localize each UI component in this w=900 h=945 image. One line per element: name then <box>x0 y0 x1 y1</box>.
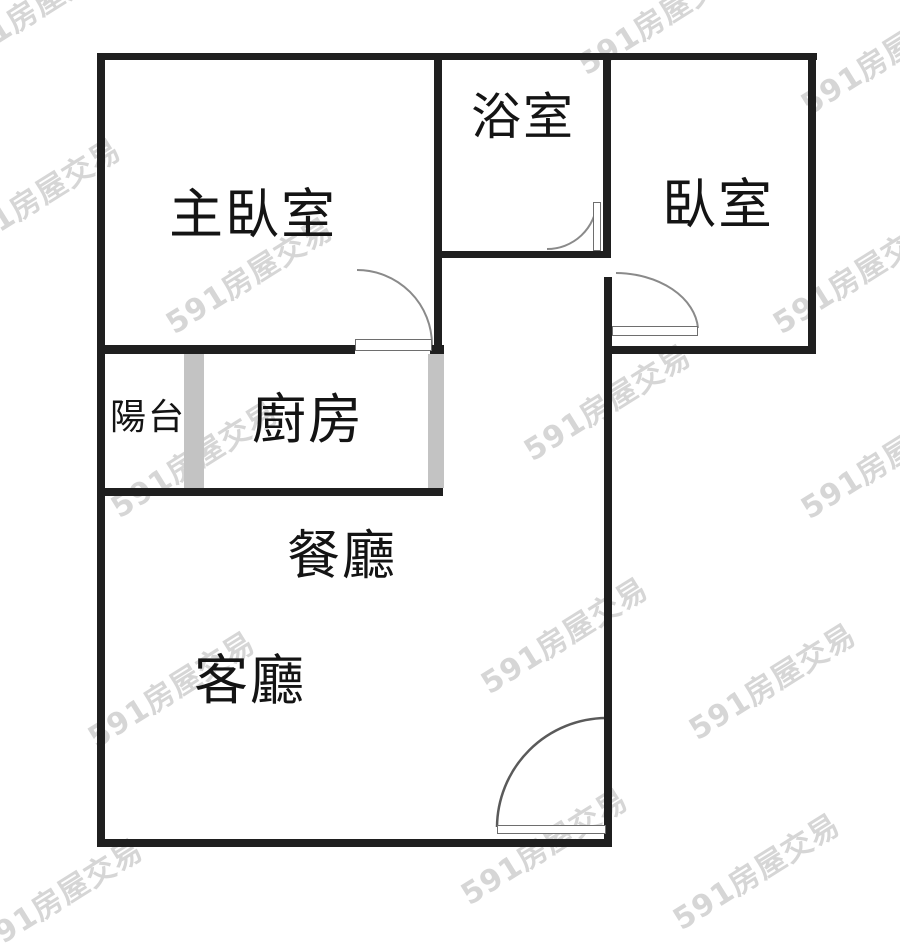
wall-bathroom-bottom <box>434 251 611 258</box>
room-label-living-room: 客廳 <box>194 654 306 708</box>
wall-kitchen-top <box>97 345 355 354</box>
wall-kitchen-bottom <box>97 488 443 496</box>
room-label-bedroom: 臥室 <box>662 178 774 232</box>
watermark: 591房屋交易 <box>669 810 846 936</box>
watermark: 591房屋交易 <box>0 135 126 261</box>
door-arc-master-bedroom <box>357 270 432 345</box>
wall-kitchen-top-stub <box>430 345 444 354</box>
watermark: 591房屋交易 <box>0 835 148 945</box>
room-label-balcony: 陽台 <box>110 400 186 436</box>
door-leaf-bathroom <box>593 202 601 251</box>
watermark: 591房屋交易 <box>477 574 654 700</box>
door-leaf-bedroom <box>612 326 698 336</box>
watermark: 591房屋交易 <box>769 214 900 340</box>
wall-left <box>97 53 105 847</box>
door-leaf-master-bedroom <box>355 339 432 351</box>
door-arcs-layer <box>0 0 900 945</box>
wall-bedroom-bottom <box>604 346 816 354</box>
room-label-kitchen: 廚房 <box>252 393 364 447</box>
door-leaf-entry <box>497 825 606 834</box>
door-arc-bathroom <box>547 202 597 249</box>
wall-top <box>97 53 817 60</box>
window-bar-balcony-divider <box>184 354 204 488</box>
window-bar-kitchen-right <box>428 354 444 488</box>
watermark: 591房屋交易 <box>685 620 862 746</box>
floorplan-canvas: 591房屋交易 591房屋交易 591房屋交易 591房屋交易 591房屋交易 … <box>0 0 900 945</box>
door-arc-bedroom <box>616 273 698 328</box>
room-label-bathroom: 浴室 <box>471 92 575 142</box>
room-label-dining-room: 餐廳 <box>287 530 397 583</box>
wall-bottom <box>97 839 612 847</box>
wall-central-vertical <box>604 277 612 847</box>
wall-divider-masterbedroom-bathroom <box>434 53 442 358</box>
room-label-master-bedroom: 主臥室 <box>169 188 337 242</box>
wall-divider-bathroom-bedroom <box>603 53 611 258</box>
watermark: 591房屋交易 <box>574 0 751 81</box>
wall-right-bedroom <box>808 53 816 354</box>
watermark: 591房屋交易 <box>797 399 900 525</box>
